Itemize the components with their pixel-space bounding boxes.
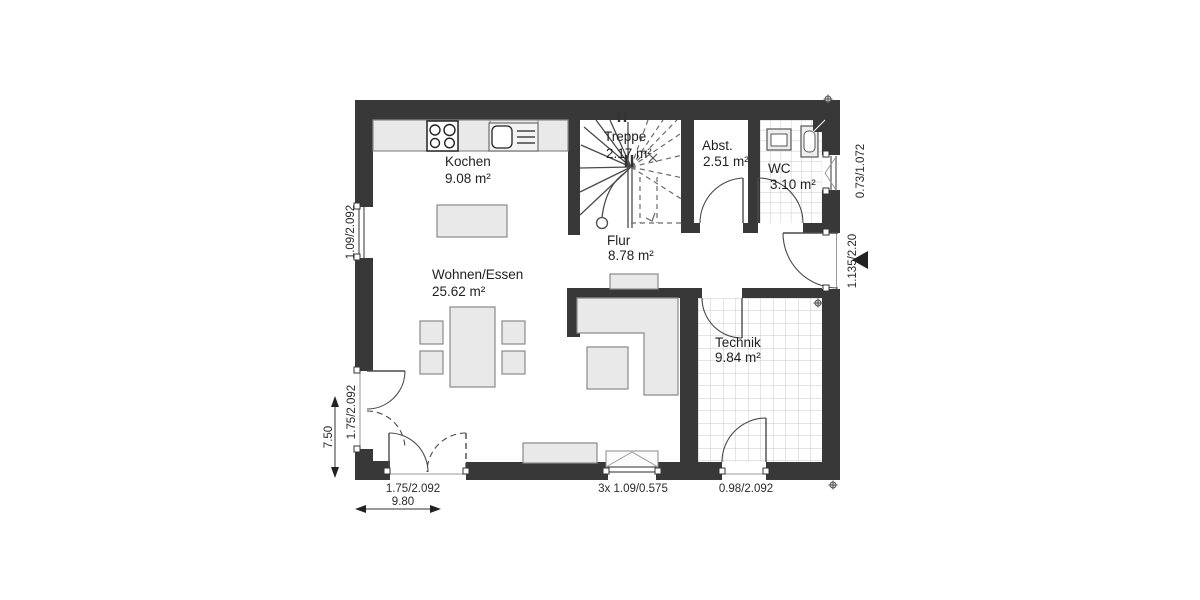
room-label-treppe: Treppe — [604, 129, 646, 144]
chair — [420, 351, 443, 374]
dim-left-window: 1.09/2.092 — [345, 205, 357, 259]
abst-door — [700, 178, 743, 223]
cooktop-icon — [427, 121, 458, 151]
room-area-kochen: 9.08 m² — [445, 171, 491, 186]
chair — [502, 351, 525, 374]
dim-left-total: 7.50 — [323, 426, 335, 448]
chair — [420, 321, 443, 344]
room-label-wohnen: Wohnen/Essen — [432, 267, 523, 282]
dim-bottom-door: 1.75/2.092 — [386, 483, 440, 495]
room-label-flur: Flur — [607, 233, 631, 248]
room-area-flur: 8.78 m² — [608, 248, 654, 263]
sideboard — [523, 443, 597, 463]
room-label-abst: Abst. — [702, 138, 733, 153]
room-label-wc: WC — [768, 161, 791, 176]
washbasin-icon — [767, 129, 791, 150]
wc-window — [823, 151, 836, 194]
marker-bottom-right — [829, 481, 838, 490]
dining-table — [450, 307, 495, 387]
dim-bottom-window: 3x 1.09/0.575 — [598, 483, 668, 495]
entrance-door — [783, 229, 838, 291]
dim-bottom-total: 9.80 — [392, 496, 414, 508]
flur-sideboard — [610, 274, 658, 289]
dim-wc-window: 0.73/1.072 — [855, 144, 867, 198]
dim-technik-door: 0.98/2.092 — [719, 483, 773, 495]
floor-plan-canvas: Kochen 9.08 m² Treppe 2.17 m² Abst. 2.51… — [0, 0, 1200, 600]
furniture — [420, 205, 678, 463]
room-floor-technik — [698, 298, 822, 462]
bottom-terrace-door — [384, 433, 469, 474]
left-terrace-door — [354, 367, 405, 452]
kitchen-island — [437, 205, 507, 237]
room-area-abst: 2.51 m² — [703, 154, 749, 169]
room-area-wohnen: 25.62 m² — [432, 284, 486, 299]
coffee-table — [587, 347, 628, 389]
bottom-window — [603, 451, 661, 474]
sink-icon — [489, 123, 538, 151]
stair-newel-post — [597, 218, 608, 229]
floor-plan-drawing: Kochen 9.08 m² Treppe 2.17 m² Abst. 2.51… — [0, 0, 1200, 600]
room-area-wc: 3.10 m² — [770, 177, 816, 192]
chair — [502, 321, 525, 344]
room-label-kochen: Kochen — [445, 154, 491, 169]
kitchen-counter — [373, 120, 568, 151]
room-area-technik: 9.84 m² — [715, 350, 761, 365]
shaft-icon — [813, 120, 825, 132]
dim-left-door: 1.75/2.092 — [346, 385, 358, 439]
room-label-technik: Technik — [715, 335, 761, 350]
room-area-treppe: 2.17 m² — [606, 146, 652, 161]
dim-entrance-door: 1.135/2.20 — [847, 234, 859, 288]
